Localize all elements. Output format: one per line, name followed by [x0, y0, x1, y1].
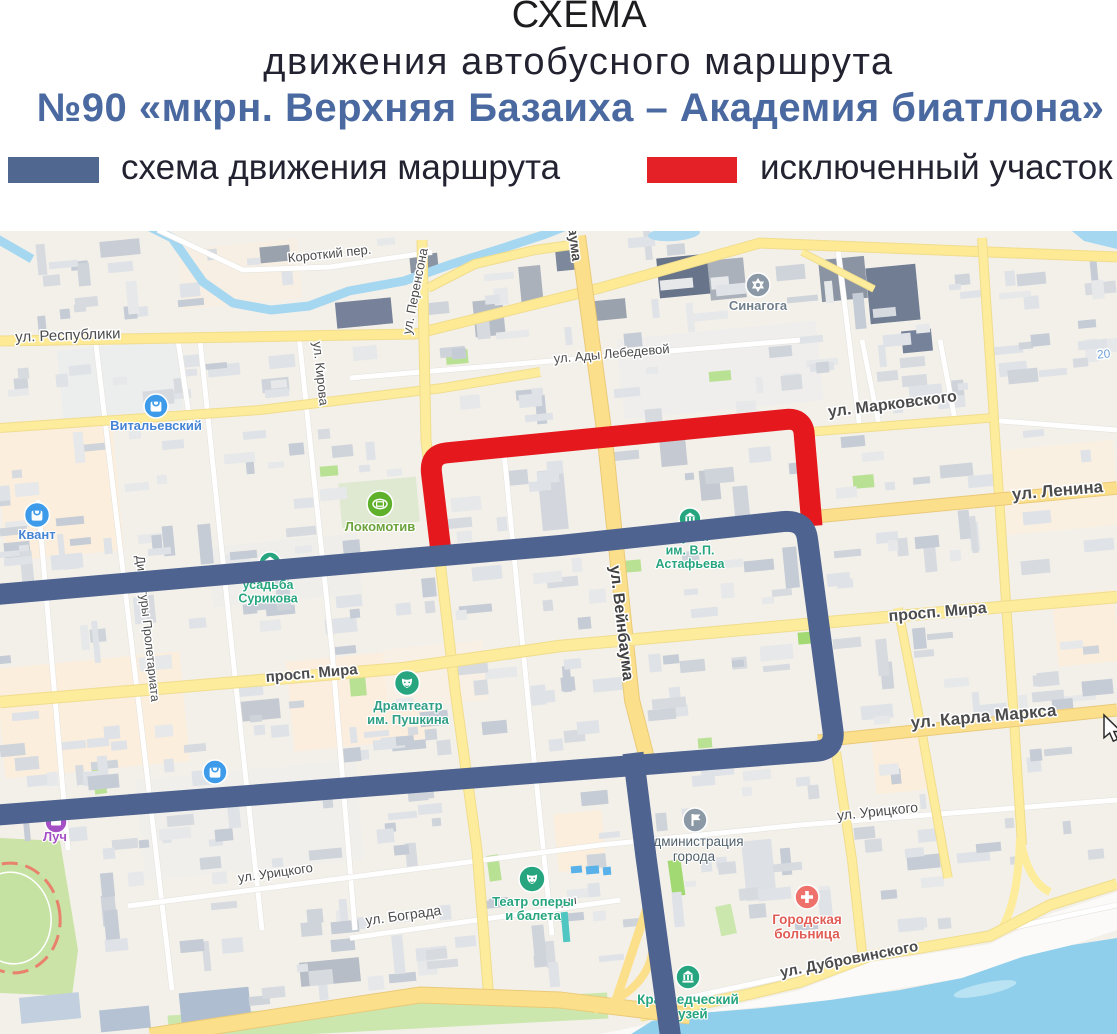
svg-text:Сурикова: Сурикова: [238, 592, 298, 606]
svg-text:Театр оперы: Театр оперы: [492, 894, 574, 909]
svg-text:Драмтеатр: Драмтеатр: [373, 698, 442, 713]
svg-text:Астафьева: Астафьева: [656, 557, 726, 571]
svg-text:города: города: [673, 849, 716, 864]
svg-text:Синагога: Синагога: [729, 298, 788, 313]
svg-text:больница: больница: [774, 927, 840, 942]
svg-text:Городская: Городская: [772, 912, 842, 927]
svg-text:Краеведческий: Краеведческий: [637, 992, 739, 1007]
svg-text:им. Пушкина: им. Пушкина: [367, 712, 450, 727]
svg-text:и балета: и балета: [505, 908, 561, 923]
svg-text:Квант: Квант: [18, 527, 55, 542]
svg-text:20: 20: [1096, 346, 1111, 361]
svg-text:Луч: Луч: [43, 829, 67, 844]
svg-text:Локомотив: Локомотив: [345, 519, 416, 534]
svg-text:Администрация: Администрация: [644, 834, 743, 849]
svg-text:им. В.П.: им. В.П.: [666, 544, 715, 558]
svg-text:Витальевский: Витальевский: [110, 418, 202, 433]
